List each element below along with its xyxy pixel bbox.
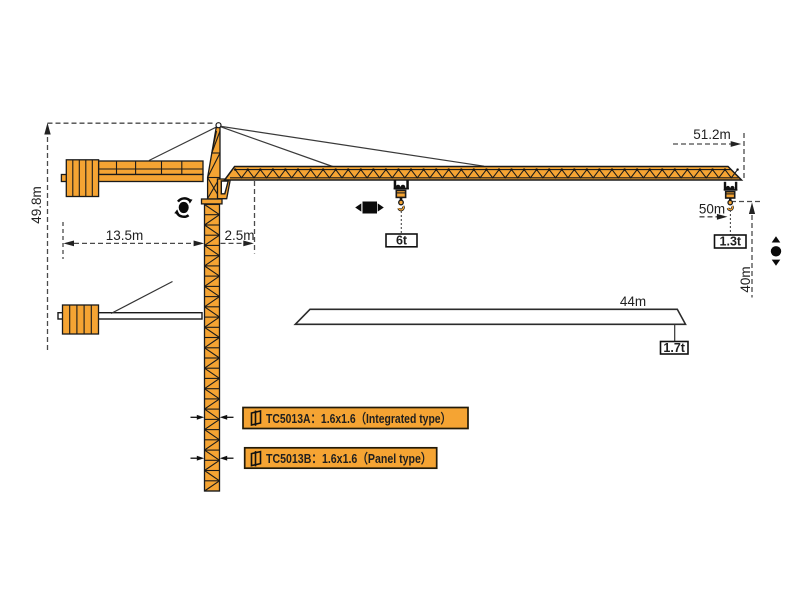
svg-text:TC5013A：1.6x1.6（Integrated typ: TC5013A：1.6x1.6（Integrated type） xyxy=(266,411,451,426)
svg-text:49.8m: 49.8m xyxy=(29,186,44,224)
svg-text:44m: 44m xyxy=(620,294,646,309)
svg-text:13.5m: 13.5m xyxy=(106,228,144,243)
svg-text:1.7t: 1.7t xyxy=(663,341,685,355)
svg-text:40m: 40m xyxy=(738,266,753,292)
svg-text:TC5013B：1.6x1.6（Panel type）: TC5013B：1.6x1.6（Panel type） xyxy=(266,451,432,466)
svg-text:51.2m: 51.2m xyxy=(693,127,731,142)
svg-text:2.5m: 2.5m xyxy=(224,228,254,243)
svg-text:6t: 6t xyxy=(396,234,408,248)
svg-text:1.3t: 1.3t xyxy=(720,235,742,249)
svg-text:50m: 50m xyxy=(699,202,725,217)
